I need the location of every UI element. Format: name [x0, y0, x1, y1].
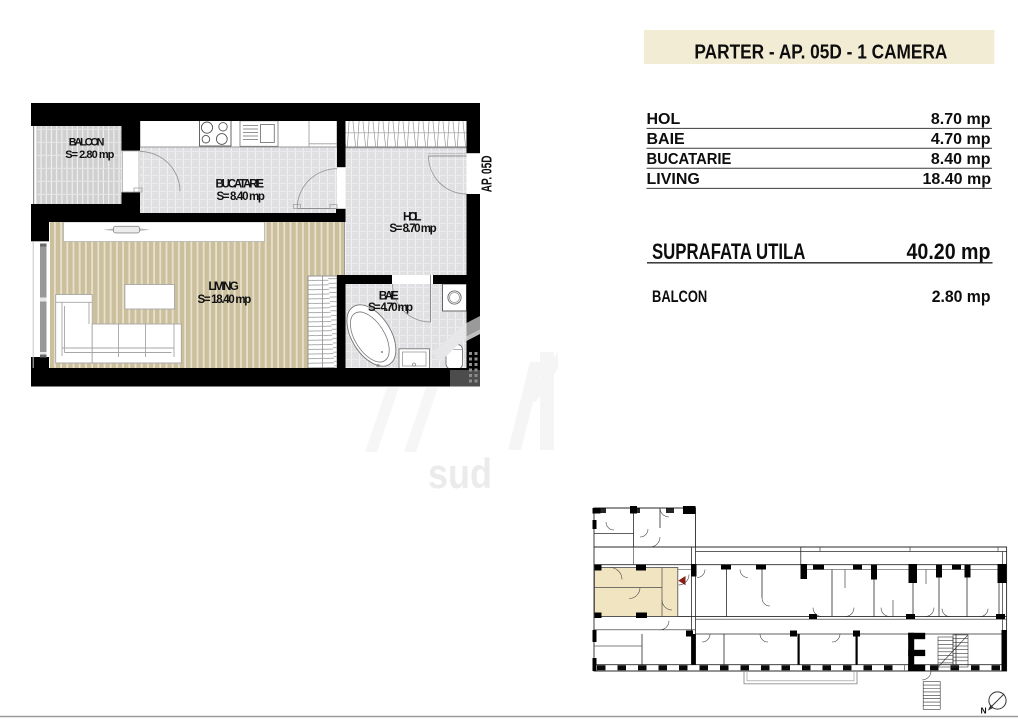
svg-text:BALCON: BALCON	[652, 287, 707, 306]
svg-text:4.70 mp: 4.70 mp	[931, 131, 991, 148]
svg-text:BUCATARIE: BUCATARIE	[647, 151, 732, 168]
svg-text:N: N	[981, 706, 987, 716]
svg-text:LIVING: LIVING	[208, 279, 239, 293]
svg-text:LIVING: LIVING	[647, 171, 700, 188]
svg-text:S= 8.40 mp: S= 8.40 mp	[216, 191, 265, 203]
svg-text:S= 18.40 mp: S= 18.40 mp	[198, 294, 252, 306]
svg-text:18.40 mp: 18.40 mp	[923, 171, 992, 188]
svg-text:S= 4.70 mp: S= 4.70 mp	[368, 302, 413, 314]
svg-text:BAIE: BAIE	[379, 289, 399, 303]
svg-text:PARTER - AP. 05D - 1 CAMERA: PARTER - AP. 05D - 1 CAMERA	[694, 42, 947, 64]
svg-text:SUPRAFATA UTILA: SUPRAFATA UTILA	[652, 239, 805, 264]
svg-text:HOL: HOL	[403, 209, 422, 223]
svg-text:40.20 mp: 40.20 mp	[907, 239, 991, 264]
svg-text:S= 2.80 mp: S= 2.80 mp	[65, 149, 114, 161]
svg-text:BAIE: BAIE	[647, 131, 686, 148]
svg-text:BUCATARIE: BUCATARIE	[216, 178, 265, 190]
svg-text:AP. 05D: AP. 05D	[480, 156, 496, 193]
svg-text:2.80 mp: 2.80 mp	[932, 287, 991, 306]
svg-text:8.70 mp: 8.70 mp	[931, 111, 991, 128]
svg-text:sud: sud	[428, 450, 492, 497]
svg-text:8.40 mp: 8.40 mp	[931, 151, 991, 168]
svg-text:HOL: HOL	[647, 111, 681, 128]
svg-text:BALCON: BALCON	[69, 137, 105, 149]
svg-text:S= 8.70 mp: S= 8.70 mp	[389, 223, 436, 235]
